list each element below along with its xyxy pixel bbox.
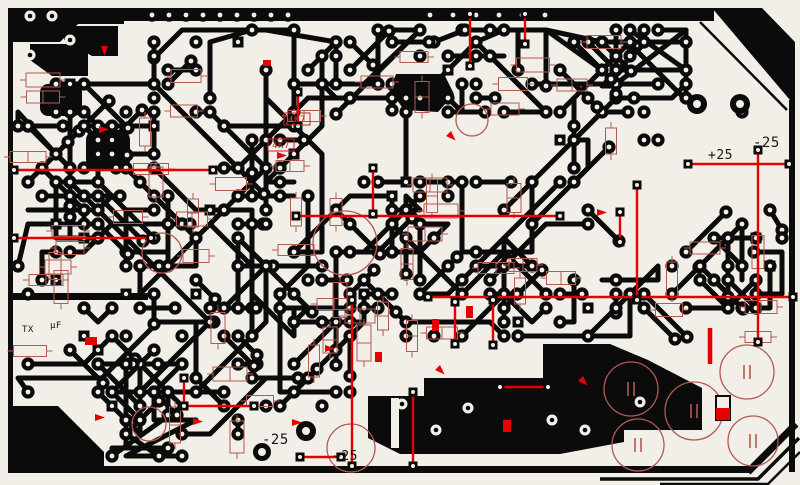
pad-hole	[40, 194, 45, 199]
pad-hole	[726, 278, 731, 283]
pad-hole	[378, 252, 383, 257]
jumper-terminal-hole	[411, 464, 415, 468]
pad-hole	[446, 54, 451, 59]
square-pad-hole	[390, 194, 394, 198]
pad-hole	[656, 28, 661, 33]
pad-hole	[173, 306, 178, 311]
pour-hole-dot	[28, 14, 33, 19]
pad-hole	[166, 194, 171, 199]
pad-hole	[460, 180, 465, 185]
pad-hole	[572, 166, 577, 171]
pad-hole	[152, 96, 157, 101]
pad-hole	[540, 268, 545, 273]
pad-hole	[387, 29, 392, 34]
board-border-right	[789, 100, 795, 472]
pad-hole	[628, 28, 633, 33]
pad-hole	[474, 250, 479, 255]
pour-hole-dot	[50, 14, 55, 19]
pad-hole	[16, 124, 21, 129]
jumper-terminal-hole	[453, 342, 457, 346]
pad-hole	[726, 306, 731, 311]
pad-hole	[390, 222, 395, 227]
big-pad-hole	[736, 100, 744, 108]
jumper-terminal-hole	[468, 64, 472, 68]
pad-hole	[712, 236, 717, 241]
pad-hole	[488, 278, 493, 283]
pad-hole	[460, 334, 465, 339]
pad-hole	[558, 110, 563, 115]
pour-hole-dot	[550, 418, 555, 423]
pad-hole	[656, 82, 661, 87]
pad-hole	[124, 432, 129, 437]
pad-hole	[586, 222, 591, 227]
pad-hole	[124, 334, 129, 339]
pad-hole	[16, 264, 21, 269]
pad-hole	[404, 96, 409, 101]
jumper-terminal-hole	[546, 385, 550, 389]
pcb-screenshot: Printed circuit board copper trace layou…	[0, 0, 800, 485]
jumper-terminal-hole	[498, 385, 502, 389]
pad-hole	[118, 194, 123, 199]
jumper-terminal-hole	[791, 295, 795, 299]
pad-hole	[474, 96, 479, 101]
pad-hole	[502, 208, 507, 213]
pad-hole	[166, 390, 171, 395]
pad-hole	[544, 306, 549, 311]
pad-hole	[124, 362, 129, 367]
pad-hole	[236, 362, 241, 367]
pad-hole	[642, 306, 647, 311]
pad-hole	[614, 278, 619, 283]
pad-hole	[152, 390, 157, 395]
pad-hole	[502, 110, 507, 115]
pad-hole	[684, 82, 689, 87]
pad-hole	[96, 194, 101, 199]
pour-hole-dot	[28, 53, 33, 58]
pad-hole	[152, 54, 157, 59]
pad-hole	[642, 110, 647, 115]
pad-hole	[26, 124, 31, 129]
pad-hole	[26, 180, 31, 185]
pad-hole	[530, 180, 535, 185]
jumper-terminal-hole	[252, 404, 256, 408]
pad-hole	[157, 399, 162, 404]
row-pad-hole	[428, 13, 433, 18]
pad-hole	[488, 54, 493, 59]
pad-hole	[600, 68, 605, 73]
jumper-terminal-hole	[558, 214, 562, 218]
pad-hole	[292, 250, 297, 255]
row-pad-hole	[167, 13, 172, 18]
pad-hole	[152, 82, 157, 87]
pad-hole	[474, 82, 479, 87]
pad-hole	[334, 363, 339, 368]
pad-hole	[255, 353, 260, 358]
pad-hole	[642, 292, 647, 297]
pad-hole	[684, 40, 689, 45]
pad-hole	[474, 54, 479, 59]
pad-hole	[586, 334, 591, 339]
pcb-label: -25	[262, 432, 289, 448]
pad-hole	[264, 208, 269, 213]
jumper-terminal-hole	[787, 162, 791, 166]
row-pad-hole	[235, 13, 240, 18]
pad-hole	[740, 264, 745, 269]
pad-hole	[156, 362, 161, 367]
pad-hole	[236, 306, 241, 311]
pad-hole	[726, 236, 731, 241]
pad-hole	[152, 208, 157, 213]
red-mark	[466, 306, 473, 318]
pad-hole	[296, 376, 301, 381]
pad-hole	[768, 208, 773, 213]
jumper-terminal-hole	[468, 12, 472, 16]
pad-hole	[418, 222, 423, 227]
pad-hole	[138, 390, 143, 395]
square-pad-hole	[362, 292, 366, 296]
pad-hole	[278, 404, 283, 409]
square-pad-hole	[124, 292, 128, 296]
pad-hole	[334, 390, 339, 395]
square-pad-hole	[68, 82, 72, 86]
pad-hole	[54, 110, 59, 115]
pad-hole	[68, 180, 73, 185]
pad-hole	[96, 180, 101, 185]
pad-hole	[306, 68, 311, 73]
pad-hole	[320, 404, 325, 409]
pad-hole	[474, 40, 479, 45]
pad-hole	[264, 264, 269, 269]
pad-hole	[345, 278, 350, 283]
square-pad-hole	[152, 124, 156, 128]
pad-hole	[320, 320, 325, 325]
pad-hole	[502, 334, 507, 339]
pad-hole	[194, 376, 199, 381]
square-pad-hole	[110, 404, 114, 408]
pad-hole	[558, 68, 563, 73]
jumper-terminal-hole	[149, 236, 153, 240]
pad-hole	[278, 292, 283, 297]
square-pad-hole	[768, 264, 772, 268]
pad-hole	[110, 390, 115, 395]
pad-hole	[125, 153, 130, 158]
pad-hole	[614, 292, 619, 297]
pad-hole	[138, 404, 143, 409]
pad-hole	[460, 278, 465, 283]
pad-hole	[68, 204, 73, 209]
pad-hole	[726, 264, 731, 269]
pad-hole	[222, 166, 227, 171]
pad-hole	[236, 236, 241, 241]
pad-hole	[463, 28, 468, 33]
pad-hole	[614, 54, 619, 59]
pad-hole	[390, 250, 395, 255]
square-pad-hole	[96, 348, 100, 352]
pad-hole	[250, 138, 255, 143]
jumper-terminal-hole	[491, 298, 495, 302]
pad-hole	[306, 278, 311, 283]
pad-hole	[320, 82, 325, 87]
pad-hole	[698, 264, 703, 269]
pad-hole	[315, 367, 320, 372]
pad-hole	[96, 390, 101, 395]
pad-hole	[138, 306, 143, 311]
pad-hole	[40, 278, 45, 283]
square-pad-hole	[586, 306, 590, 310]
pad-hole	[236, 222, 241, 227]
pad-hole	[138, 418, 143, 423]
pad-hole	[68, 250, 73, 255]
pad-hole	[446, 264, 451, 269]
pour-hole-dot	[466, 406, 471, 411]
pad-hole	[502, 306, 507, 311]
pad-hole	[126, 252, 131, 257]
pad-hole	[418, 194, 423, 199]
pad-hole	[670, 264, 675, 269]
pad-hole	[488, 28, 493, 33]
pad-hole	[629, 69, 634, 74]
pad-hole	[642, 138, 647, 143]
pad-hole	[250, 28, 255, 33]
pad-hole	[460, 292, 465, 297]
pcb-label: TX	[22, 325, 34, 335]
pad-hole	[446, 180, 451, 185]
pour-hole-dot	[400, 402, 405, 407]
pad-hole	[460, 82, 465, 87]
pcb-label: +25	[708, 148, 733, 163]
pad-hole	[334, 82, 339, 87]
pad-hole	[362, 306, 367, 311]
pad-hole	[614, 28, 619, 33]
jumper-terminal-hole	[371, 212, 375, 216]
pad-hole	[348, 68, 353, 73]
pad-hole	[673, 337, 678, 342]
pad-hole	[348, 40, 353, 45]
pad-hole	[278, 166, 283, 171]
pad-hole	[376, 28, 381, 33]
pad-hole	[278, 306, 283, 311]
pad-hole	[236, 418, 241, 423]
pad-hole	[222, 334, 227, 339]
pcb-label: 4K7	[272, 141, 290, 151]
pad-hole	[236, 166, 241, 171]
pad-hole	[404, 110, 409, 115]
pad-hole	[124, 110, 129, 115]
pad-hole	[194, 236, 199, 241]
pad-hole	[26, 390, 31, 395]
pad-hole	[348, 222, 353, 227]
pad-hole	[152, 110, 157, 115]
pad-hole	[558, 180, 563, 185]
pad-hole	[166, 446, 171, 451]
pad-hole	[222, 390, 227, 395]
jumper-terminal-hole	[350, 298, 354, 302]
pad-hole	[208, 110, 213, 115]
pad-hole	[194, 390, 199, 395]
pad-hole	[124, 264, 129, 269]
row-pad-hole	[184, 13, 189, 18]
pad-hole	[320, 54, 325, 59]
row-pad-hole	[150, 13, 155, 18]
pad-hole	[292, 390, 297, 395]
pad-hole	[628, 40, 633, 45]
pad-hole	[110, 334, 115, 339]
jumper-terminal-hole	[296, 90, 300, 94]
big-pad-hole	[693, 100, 701, 108]
pad-hole	[698, 278, 703, 283]
pad-hole	[348, 250, 353, 255]
pad-hole	[572, 40, 577, 45]
pad-hole	[68, 194, 73, 199]
pad-hole	[82, 110, 87, 115]
square-pad-hole	[96, 152, 100, 156]
pad-hole	[254, 306, 259, 311]
pad-hole	[180, 362, 185, 367]
pcb-label: 4K7	[288, 115, 306, 125]
square-pad-hole	[110, 138, 114, 142]
pad-hole	[502, 320, 507, 325]
pad-hole	[166, 68, 171, 73]
square-pad-hole	[558, 138, 562, 142]
jumper-terminal-hole	[211, 168, 215, 172]
pad-hole	[180, 454, 185, 459]
square-pad-hole	[194, 292, 198, 296]
pad-hole	[432, 236, 437, 241]
row-pad-hole	[543, 13, 548, 18]
pad-hole	[68, 348, 73, 353]
pour-hole-dot	[68, 38, 73, 43]
jumper-terminal-hole	[371, 166, 375, 170]
pad-hole	[236, 194, 241, 199]
pad-hole	[166, 222, 171, 227]
pour-hole-dot	[434, 428, 439, 433]
pad-hole	[474, 180, 479, 185]
pad-hole	[157, 264, 162, 269]
pad-hole	[292, 362, 297, 367]
pad-hole	[595, 105, 600, 110]
pad-hole	[26, 292, 31, 297]
pad-hole	[250, 222, 255, 227]
pad-hole	[194, 278, 199, 283]
pad-hole	[404, 272, 409, 277]
pad-hole	[292, 320, 297, 325]
pad-hole	[558, 292, 563, 297]
pcb-label: -25	[753, 135, 780, 151]
pad-hole	[101, 381, 106, 386]
square-pad-hole	[446, 68, 450, 72]
pad-hole	[530, 222, 535, 227]
pad-hole	[222, 124, 227, 129]
pad-hole	[446, 96, 451, 101]
red-mark	[263, 60, 271, 66]
pad-hole	[250, 334, 255, 339]
big-pad-hole	[302, 427, 310, 435]
pad-hole	[157, 454, 162, 459]
pad-hole	[502, 292, 507, 297]
red-mark	[432, 319, 439, 331]
jumper-terminal-hole	[686, 162, 690, 166]
pad-hole	[390, 40, 395, 45]
jumper-terminal-hole	[618, 240, 622, 244]
jumper-terminal-hole	[635, 183, 639, 187]
row-pad-hole	[269, 13, 274, 18]
pad-hole	[152, 322, 157, 327]
pad-hole	[82, 194, 87, 199]
pad-hole	[348, 96, 353, 101]
pour-hole-dot	[583, 428, 588, 433]
jumper-terminal-hole	[411, 390, 415, 394]
pad-hole	[530, 264, 535, 269]
pad-hole	[175, 413, 180, 418]
pad-hole	[68, 215, 73, 220]
pad-hole	[334, 112, 339, 117]
pad-hole	[614, 306, 619, 311]
pad-hole	[264, 68, 269, 73]
pad-hole	[418, 180, 423, 185]
pad-hole	[302, 138, 307, 143]
pad-hole	[138, 180, 143, 185]
pad-hole	[110, 152, 115, 157]
pcb-label: +25	[333, 449, 358, 464]
pad-hole	[189, 59, 194, 64]
pad-hole	[82, 306, 87, 311]
pad-hole	[126, 126, 131, 131]
pad-hole	[54, 180, 59, 185]
pad-hole	[372, 268, 377, 273]
pad-hole	[138, 264, 143, 269]
square-pad-hole	[236, 40, 240, 44]
pad-hole	[724, 210, 729, 215]
square-pad-hole	[404, 180, 408, 184]
pad-hole	[418, 278, 423, 283]
board-border-bottom	[8, 466, 750, 473]
big-pad-hole	[258, 448, 266, 456]
pad-hole	[376, 82, 381, 87]
pad-hole	[61, 124, 66, 129]
pad-hole	[362, 278, 367, 283]
pad-hole	[684, 250, 689, 255]
pad-hole	[124, 418, 129, 423]
pad-hole	[68, 110, 73, 115]
square-pad-hole	[516, 320, 520, 324]
pad-hole	[376, 292, 381, 297]
jumper-terminal-hole	[618, 210, 622, 214]
pad-hole	[418, 54, 423, 59]
pad-hole	[110, 124, 115, 129]
square-pad-hole	[292, 152, 296, 156]
pad-hole	[740, 222, 745, 227]
pad-hole	[250, 376, 255, 381]
pad-hole	[515, 292, 520, 297]
pad-hole	[250, 194, 255, 199]
pad-hole	[250, 171, 255, 176]
row-pad-hole	[218, 13, 223, 18]
jumper-terminal-hole	[453, 300, 457, 304]
row-pad-hole	[201, 13, 206, 18]
pad-hole	[180, 334, 185, 339]
red-mark	[375, 352, 382, 362]
pad-hole	[614, 68, 619, 73]
pad-hole	[404, 208, 409, 213]
pad-hole	[320, 278, 325, 283]
pad-hole	[780, 236, 785, 241]
pad-hole	[66, 140, 71, 145]
pad-hole	[334, 320, 339, 325]
pad-hole	[107, 99, 112, 104]
jumper-terminal-hole	[491, 343, 495, 347]
pad-hole	[609, 77, 614, 82]
pad-hole	[292, 28, 297, 33]
